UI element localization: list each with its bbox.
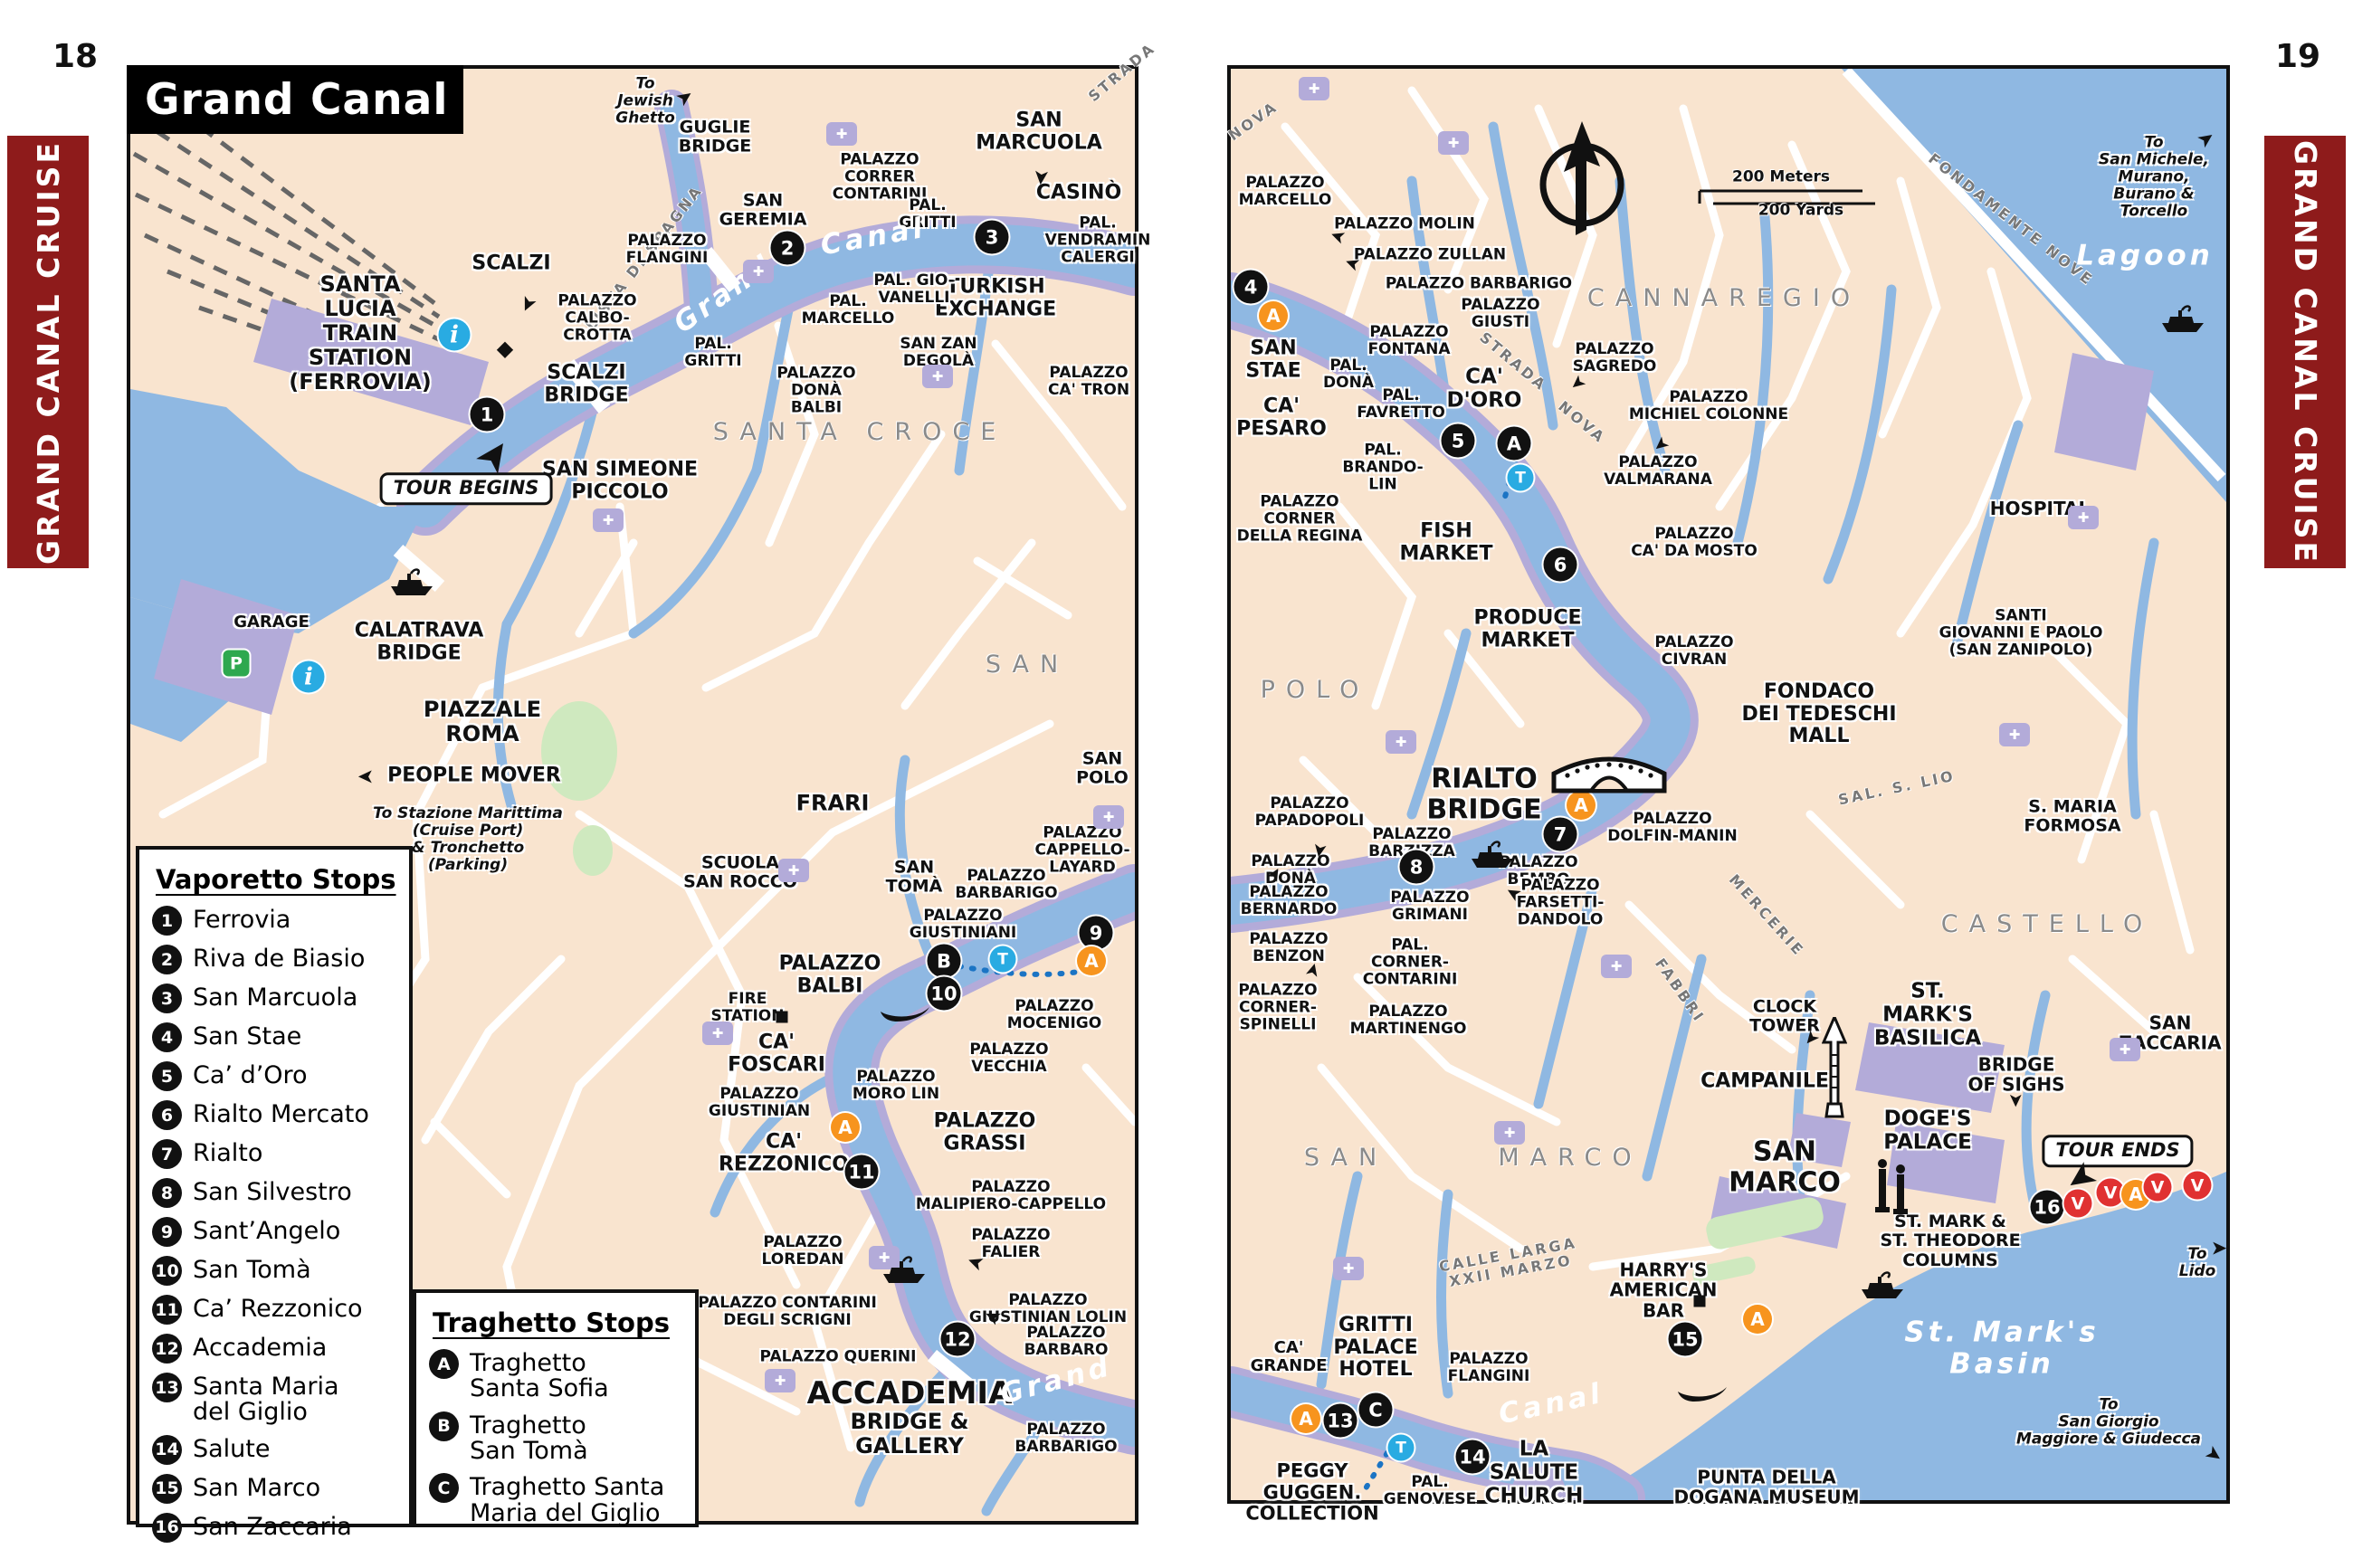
vaporetto-item-10: 10San Tomà (152, 1256, 396, 1286)
right-map-label: PALAZZO DOLFIN-MANIN (1607, 811, 1737, 845)
vaporetto-stop-marker: 16 (2031, 1191, 2064, 1224)
left-map-label: PALAZZO GRASSI (934, 1110, 1036, 1155)
left-map-label: Grand (997, 1351, 1116, 1411)
church-icon: ✚ (1299, 77, 1329, 100)
arrow-icon: ➤ (964, 1249, 987, 1276)
left-map-label: SCALZI BRIDGE (544, 362, 628, 406)
right-map-label: CA' GRANDE (1251, 1339, 1328, 1375)
traghetto-item-C: CTraghetto Santa Maria del Giglio (429, 1473, 682, 1526)
legend-stop-label: Accademia (193, 1334, 327, 1361)
right-map-label: PALAZZO VALMARANA (1604, 454, 1712, 489)
alilaguna-marker: A (1259, 301, 1288, 330)
vaporetto-line-marker: V (2144, 1174, 2172, 1202)
right-map-label: PALAZZO MARCELLO (1239, 175, 1332, 209)
church-icon: ✚ (778, 859, 809, 882)
arrow-icon: ➤ (2211, 1238, 2227, 1260)
right-map-label: FONDACO DEI TEDESCHI MALL (1741, 681, 1896, 748)
arrow-icon: ➤ (980, 1303, 1005, 1330)
arrow-icon: ➤ (1300, 960, 1325, 980)
church-icon: ✚ (1494, 1121, 1525, 1145)
right-map-label: SAN MARCO (1729, 1136, 1841, 1197)
right-map-label: CAMPANILE (1700, 1071, 1829, 1094)
right-map-label: CALLE LARGA XXII MARZO (1438, 1235, 1581, 1291)
left-map-label: CALATRAVA BRIDGE (355, 620, 484, 664)
left-map-label: TOUR BEGINS (380, 472, 553, 505)
left-map-label: FIRE STATION (711, 991, 785, 1025)
legend-stop-bullet: 11 (152, 1295, 182, 1325)
left-map-label: SAN MARCUOLA (976, 109, 1102, 154)
left-map-label: TURKISH EXCHANGE (935, 276, 1056, 320)
right-map-label: PALAZZO PAPADOPOLI (1255, 795, 1365, 830)
legend-stop-label: San Marco (193, 1474, 320, 1501)
columns-icon (1872, 1158, 1910, 1220)
left-map-label: BRIDGE & GALLERY (850, 1410, 968, 1459)
boat-icon (1858, 1268, 1907, 1306)
right-map-label: To San Giorgio Maggiore & Giudecca (2016, 1396, 2201, 1448)
vaporetto-item-14: 14Salute (152, 1435, 396, 1465)
church-icon: ✚ (922, 365, 953, 388)
page: 18 19 GRAND CANAL CRUISE GRAND CANAL CRU… (0, 0, 2353, 1568)
arrow-icon: ➤ (514, 291, 541, 316)
arrow-icon: ➤ (1327, 224, 1348, 250)
arrow-icon: ➤ (1309, 841, 1333, 860)
legend-stop-bullet: 15 (152, 1474, 182, 1504)
bridge-icon (1549, 739, 1669, 799)
right-map-label: NOVA (1225, 99, 1281, 144)
legend-stop-bullet: 16 (152, 1513, 182, 1543)
right-map-label: SAN (1304, 1145, 1387, 1172)
parking-icon: P (224, 651, 250, 677)
right-map-label: 200 Yards (1758, 202, 1843, 219)
legend-stop-bullet: 8 (152, 1178, 182, 1208)
vaporetto-legend-title: Vaporetto Stops (156, 864, 396, 895)
poi-square-icon (776, 1012, 788, 1023)
traghetto-legend: Traghetto Stops ATraghetto Santa SofiaBT… (413, 1289, 699, 1527)
church-icon: ✚ (743, 260, 774, 283)
left-map-label: GARAGE (233, 613, 310, 632)
right-map-label: SANTI GIOVANNI E PAOLO (SAN ZANIPOLO) (1939, 607, 2103, 659)
right-map-label: GRITTI PALACE HOTEL (1333, 1315, 1417, 1382)
arrow-icon: ➤ (2200, 1440, 2226, 1468)
vaporetto-item-8: 8San Silvestro (152, 1178, 396, 1208)
legend-stop-bullet: 2 (152, 945, 182, 974)
alilaguna-marker: A (1291, 1404, 1320, 1433)
legend-stop-label: Ferrovia (193, 906, 291, 933)
right-map-label: RIALTO BRIDGE (1426, 764, 1541, 824)
right-map-label: PALAZZO BENZON (1249, 931, 1328, 965)
right-map-label: TOUR ENDS (2042, 1135, 2193, 1167)
left-map-label: PALAZZO BARBARIGO (1015, 1421, 1117, 1456)
right-map-label: FISH MARKET (1400, 520, 1493, 565)
right-map-label: Canal (1496, 1378, 1606, 1430)
right-map-label: ST. MARK'S BASILICA (1874, 980, 1981, 1050)
left-map-label: SAN POLO (1076, 750, 1129, 789)
church-icon: ✚ (593, 508, 624, 532)
north-icon (1531, 119, 1633, 242)
traghetto-item-B: BTraghetto San Tomà (429, 1411, 682, 1465)
right-map-label: SAN STAE (1245, 337, 1300, 382)
vaporetto-stop-marker: 12 (941, 1323, 975, 1356)
right-map-label: PALAZZO CORNER DELLA REGINA (1237, 493, 1363, 545)
right-map-label: PALAZZO CORNER- SPINELLI (1238, 982, 1317, 1033)
left-map-label: PALAZZO FLANGINI (626, 233, 709, 267)
traghetto-legend-list: ATraghetto Santa SofiaBTraghetto San Tom… (429, 1349, 682, 1526)
left-map-label: PEOPLE MOVER (387, 765, 561, 788)
vaporetto-item-6: 6Rialto Mercato (152, 1100, 396, 1130)
church-icon: ✚ (765, 1369, 795, 1392)
traghetto-item-A: ATraghetto Santa Sofia (429, 1349, 682, 1402)
alilaguna-marker: A (1567, 791, 1596, 820)
boat-icon (387, 565, 436, 603)
legend-stop-label: San Silvestro (193, 1178, 352, 1205)
vaporetto-item-15: 15San Marco (152, 1474, 396, 1504)
legend-stop-label: Traghetto Santa Sofia (470, 1349, 609, 1402)
legend-stop-bullet: 14 (152, 1435, 182, 1465)
church-icon: ✚ (2110, 1038, 2140, 1061)
left-map-label: PALAZZO GIUSTINIANI (910, 908, 1017, 942)
right-map-label: PALAZZO BERNARDO (1241, 884, 1338, 918)
legend-stop-label: Sant’Angelo (193, 1217, 340, 1244)
traghetto-crossing-marker: T (1508, 465, 1534, 491)
vaporetto-stop-marker: 5 (1442, 424, 1475, 458)
right-map-label: PALAZZO CIVRAN (1654, 634, 1733, 669)
left-map-label: SANTA LUCIA TRAIN STATION (FERROVIA) (289, 272, 432, 394)
gondola-icon (879, 1003, 931, 1027)
left-map-label: PALAZZO CORRER CONTARINI (833, 151, 928, 203)
arrow-icon: ➤ (672, 83, 698, 111)
left-map-label: To Jewish Ghetto (615, 75, 675, 127)
right-map-label: PALAZZO MOLIN (1334, 215, 1475, 233)
traghetto-legend-title: Traghetto Stops (433, 1307, 682, 1338)
right-map-label: BRIDGE OF SIGHS (1967, 1055, 2064, 1096)
vaporetto-item-4: 4San Stae (152, 1022, 396, 1052)
vaporetto-stop-marker: 10 (928, 977, 961, 1011)
left-map-label: PAL. GIO- VANELLI (873, 272, 954, 307)
vaporetto-stop-marker: 7 (1544, 818, 1577, 851)
vaporetto-stop-marker: 13 (1324, 1404, 1357, 1438)
right-map-label: LA SALUTE CHURCH (1485, 1438, 1584, 1507)
church-icon: ✚ (826, 122, 857, 146)
church-icon: ✚ (1438, 131, 1469, 155)
tourist-info-icon: i (293, 661, 325, 693)
vaporetto-stop-marker: 4 (1234, 271, 1268, 304)
diamond-icon: ◆ (497, 336, 513, 361)
left-map-label: PALAZZO VECCHIA (969, 1041, 1048, 1076)
right-map-label: S. MARIA FORMOSA (2024, 798, 2120, 837)
right-map-label: PALAZZO MARTINENGO (1350, 1003, 1467, 1038)
vaporetto-stop-marker: 11 (845, 1155, 879, 1189)
left-map-label: PIAZZALE ROMA (424, 698, 541, 746)
right-map-label: PALAZZO FARSETTI- DANDOLO (1517, 877, 1605, 928)
arrow-icon: ➤ (1501, 880, 1526, 907)
vaporetto-stop-marker: 6 (1544, 548, 1577, 582)
right-map-label: PAL. DONÀ (1323, 357, 1374, 392)
left-map-label: GUGLIE BRIDGE (679, 119, 752, 157)
left-map-label: CA' FOSCARI (728, 1031, 825, 1076)
arrow-icon: ➤ (1798, 1026, 1824, 1051)
right-map-label: FABBRI (1652, 955, 1708, 1026)
church-icon: ✚ (1999, 723, 2030, 746)
left-map-label: PAL. GRITTI (899, 197, 956, 232)
legend-stop-label: Ca’ d’Oro (193, 1061, 308, 1088)
alilaguna-marker: A (831, 1113, 860, 1142)
right-map-label: PRODUCE MARKET (1473, 607, 1581, 651)
vaporetto-stop-marker: 9 (1080, 917, 1113, 950)
tourist-info-icon: i (439, 319, 471, 351)
left-map-label: SAN (986, 651, 1069, 679)
legend-stop-label: Riva de Biasio (193, 945, 365, 972)
legend-stop-bullet: B (429, 1411, 459, 1441)
left-map-label: SANTA CROCE (713, 419, 1007, 446)
left-map-label: LISTA DI SPAGNA (583, 182, 706, 333)
right-map-label: PEGGY GUGGEN. COLLECTION (1245, 1461, 1378, 1525)
poi-square-icon (1694, 1296, 1706, 1307)
vaporetto-stop-marker: 8 (1400, 851, 1434, 884)
right-map-label: ST. MARK & ST. THEODORE COLUMNS (1880, 1212, 2020, 1270)
traghetto-stop-marker: B (928, 945, 961, 978)
left-map-label: PALAZZO QUERINI (760, 1348, 917, 1365)
right-map-label: MERCERIE (1726, 871, 1807, 959)
right-map-label: CA' D'ORO (1447, 366, 1522, 413)
right-map-label: PALAZZO FLANGINI (1448, 1351, 1530, 1385)
legend-stop-label: Rialto Mercato (193, 1100, 369, 1127)
vaporetto-stop-marker: 14 (1456, 1440, 1490, 1474)
vaporetto-item-3: 3San Marcuola (152, 984, 396, 1013)
traghetto-stop-marker: A (1498, 427, 1531, 461)
right-map-label: PAL. GENOVESE (1384, 1474, 1476, 1508)
right-map-label: STRADA (1476, 329, 1549, 394)
right-map-label: FONDAMENTE NOVE (1925, 150, 2096, 289)
left-map-label: SAN SIMEONE PICCOLO (542, 459, 698, 503)
left-map-label: PALAZZO CA' TRON (1048, 365, 1129, 399)
legend-stop-bullet: 9 (152, 1217, 182, 1247)
vaporetto-stop-marker: 3 (976, 221, 1009, 254)
legend-stop-label: Ca’ Rezzonico (193, 1295, 363, 1322)
legend-stop-bullet: A (429, 1349, 459, 1379)
legend-stop-label: Santa Maria del Giglio (193, 1373, 339, 1426)
campanile-icon (1822, 1017, 1847, 1122)
legend-stop-bullet: 13 (152, 1373, 182, 1402)
left-map-label: STRADA (1085, 40, 1158, 105)
right-map-label: PALAZZO ZULLAN (1354, 246, 1506, 263)
right-map-label: PAL. BRANDO- LIN (1342, 442, 1423, 493)
right-map-label: PALAZZO GIUSTI (1461, 297, 1539, 331)
arrow-icon: ➤ (357, 765, 374, 788)
legend-stop-label: San Marcuola (193, 984, 357, 1011)
left-map-label: PAL. VENDRAMIN CALERGI (1045, 214, 1151, 266)
legend-stop-label: Traghetto Santa Maria del Giglio (470, 1473, 664, 1526)
arrow-icon: ➤ (1341, 252, 1363, 277)
church-icon: ✚ (1093, 805, 1124, 829)
vaporetto-legend-list: 1Ferrovia2Riva de Biasio3San Marcuola4Sa… (152, 906, 396, 1543)
right-map-label: PAL. CORNER- CONTARINI (1363, 936, 1458, 988)
right-map-label: CASTELLO (1941, 911, 2153, 938)
legend-stop-bullet: 12 (152, 1334, 182, 1364)
right-map-label: PALAZZO SAGREDO (1573, 341, 1657, 375)
right-map-label: POLO (1261, 677, 1370, 704)
vaporetto-stop-marker: 15 (1669, 1323, 1702, 1356)
vaporetto-item-11: 11Ca’ Rezzonico (152, 1295, 396, 1325)
right-map-label: PUNTA DELLA DOGANA MUSEUM (1673, 1468, 1859, 1508)
right-map-label: NOVA (1555, 398, 1608, 447)
church-icon: ✚ (1386, 730, 1416, 754)
arrow-icon: ➤ (2005, 1093, 2027, 1108)
right-map-label: PAL. FAVRETTO (1357, 387, 1445, 422)
left-map-label: PALAZZO CONTARINI DEGLI SCRIGNI (698, 1295, 877, 1329)
church-icon: ✚ (702, 1022, 733, 1045)
alilaguna-marker: A (1743, 1305, 1772, 1334)
left-map-label: PALAZZO BALBI (779, 953, 881, 997)
left-map-label: PALAZZO GIUSTINIAN (709, 1086, 810, 1120)
vaporetto-item-5: 5Ca’ d’Oro (152, 1061, 396, 1091)
legend-stop-label: Traghetto San Tomà (470, 1411, 588, 1465)
left-map-label: PAL. GRITTI (684, 336, 741, 370)
gondola-icon (1676, 1383, 1729, 1407)
arrow-icon: ➤ (463, 427, 523, 484)
church-icon: ✚ (1333, 1257, 1364, 1280)
right-map-label: HARRY'S AMERICAN BAR (1610, 1259, 1718, 1320)
right-map-label: DOGE'S PALACE (1883, 1107, 1972, 1155)
left-map-label: SCALZI (472, 253, 550, 276)
vaporetto-item-2: 2Riva de Biasio (152, 945, 396, 974)
church-icon: ✚ (1601, 955, 1632, 978)
arrow-icon: ➤ (1566, 370, 1591, 396)
alilaguna-marker: A (1077, 946, 1106, 975)
vaporetto-stop-marker: 1 (471, 398, 504, 432)
vaporetto-item-16: 16San Zaccaria (152, 1513, 396, 1543)
vaporetto-item-9: 9Sant’Angelo (152, 1217, 396, 1247)
arrow-icon: ➤ (1029, 168, 1053, 187)
left-map-label: PALAZZO CALBO- CROTTA (557, 292, 636, 344)
arrow-icon: ➤ (1261, 862, 1287, 887)
left-map-label: FRARI (796, 792, 870, 816)
church-icon: ✚ (869, 1246, 900, 1269)
legend-stop-bullet: 3 (152, 984, 182, 1013)
right-map-label: CANNAREGIO (1587, 285, 1861, 312)
legend-stop-bullet: 7 (152, 1139, 182, 1169)
vaporetto-item-13: 13Santa Maria del Giglio (152, 1373, 396, 1426)
traghetto-crossing-marker: T (990, 946, 1016, 973)
traghetto-crossing-marker: T (1388, 1435, 1415, 1461)
right-map-label: 200 Meters (1732, 168, 1830, 185)
left-map-label: PALAZZO MORO LIN (853, 1069, 939, 1103)
right-map-label: PALAZZO MICHIEL COLONNE (1629, 389, 1788, 423)
left-map-label: PALAZZO BARBARO (1024, 1325, 1109, 1359)
left-map-label: PALAZZO CAPPELLO- LAYARD (1034, 824, 1129, 876)
right-map-label: PALAZZO FONTANA (1367, 324, 1450, 358)
legend-stop-bullet: 1 (152, 906, 182, 936)
legend-stop-label: San Tomà (193, 1256, 311, 1283)
left-map-label: SAN TOMÀ (886, 859, 943, 898)
vaporetto-legend: Vaporetto Stops 1Ferrovia2Riva de Biasio… (136, 846, 413, 1527)
legend-stop-label: San Stae (193, 1022, 301, 1050)
legend-stop-bullet: 4 (152, 1022, 182, 1052)
left-map-label: Canal (818, 213, 929, 262)
right-map-label: Lagoon (2076, 241, 2214, 272)
legend-stop-label: Salute (193, 1435, 271, 1462)
boat-icon (1468, 837, 1517, 875)
left-map-label: PALAZZO DONÀ BALBI (776, 365, 855, 416)
right-map-label: CA' PESARO (1236, 395, 1327, 440)
vaporetto-item-1: 1Ferrovia (152, 906, 396, 936)
vaporetto-item-12: 12Accademia (152, 1334, 396, 1364)
vaporetto-stop-marker: 2 (771, 232, 805, 265)
left-map-label: SAN GEREMIA (719, 192, 807, 231)
left-map-label: PAL. MARCELLO (802, 293, 895, 328)
left-map-label: PALAZZO MALIPIERO-CAPPELLO (916, 1179, 1106, 1213)
left-map-label: ACCADEMIA (807, 1376, 1013, 1411)
arrow-icon: ➤ (2193, 125, 2219, 153)
legend-stop-label: San Zaccaria (193, 1513, 352, 1540)
right-map-label: To San Michele, Murano, Burano & Torcell… (2099, 134, 2209, 220)
legend-stop-bullet: 5 (152, 1061, 182, 1091)
right-map-label: MARCO (1498, 1145, 1642, 1172)
legend-stop-bullet: 6 (152, 1100, 182, 1130)
legend-stop-bullet: 10 (152, 1256, 182, 1286)
left-map-label: PALAZZO MOCENIGO (1007, 998, 1101, 1032)
right-map-label: SAL. S. LIO (1837, 768, 1958, 809)
arrow-icon: ➤ (1649, 432, 1674, 458)
vaporetto-line-marker: V (2184, 1172, 2212, 1200)
legend-stop-bullet: C (429, 1473, 459, 1503)
right-map-label: PALAZZO GRIMANI (1390, 889, 1469, 924)
left-map-label: CA' REZZONICO (719, 1131, 849, 1175)
left-map-label: PALAZZO LOREDAN (762, 1234, 844, 1269)
left-map-label: PALAZZO BARBARIGO (955, 868, 1057, 902)
right-map-label: PALAZZO BARBARIGO (1386, 275, 1572, 292)
boat-icon (2158, 301, 2207, 339)
traghetto-stop-marker: C (1359, 1393, 1393, 1427)
vaporetto-item-7: 7Rialto (152, 1139, 396, 1169)
legend-stop-label: Rialto (193, 1139, 262, 1166)
church-icon: ✚ (2068, 506, 2099, 529)
right-map-label: PALAZZO CA' DA MOSTO (1631, 526, 1758, 560)
right-map-label: St. Mark's Basin (1904, 1316, 2099, 1379)
